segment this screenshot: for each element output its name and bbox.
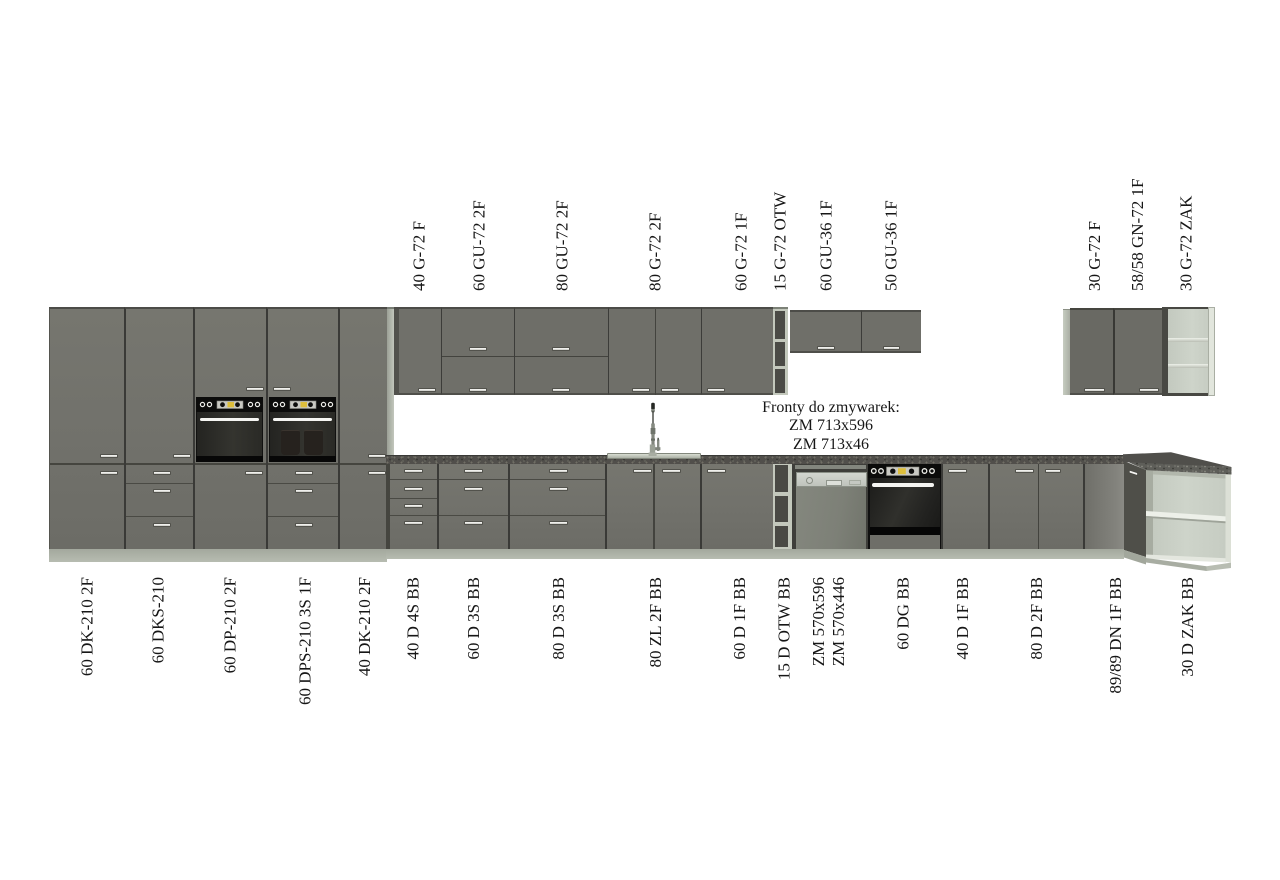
svg-text:ZM 570x446: ZM 570x446 xyxy=(829,577,848,666)
svg-text:60 DPS-210 3S 1F: 60 DPS-210 3S 1F xyxy=(296,577,315,705)
svg-text:60 GU-72 2F: 60 GU-72 2F xyxy=(470,200,489,291)
svg-text:30 D ZAK BB: 30 D ZAK BB xyxy=(1178,577,1197,677)
svg-text:30 G-72 ZAK: 30 G-72 ZAK xyxy=(1177,195,1196,291)
svg-text:50 GU-36 1F: 50 GU-36 1F xyxy=(882,200,901,291)
svg-text:60 G-72 1F: 60 G-72 1F xyxy=(732,213,751,291)
svg-text:40 D 4S BB: 40 D 4S BB xyxy=(404,577,423,660)
svg-text:80 D 2F BB: 80 D 2F BB xyxy=(1027,577,1046,660)
svg-text:40 G-72 F: 40 G-72 F xyxy=(410,221,429,291)
svg-text:60 GU-36 1F: 60 GU-36 1F xyxy=(817,200,836,291)
svg-text:80 G-72 2F: 80 G-72 2F xyxy=(646,213,665,291)
svg-text:80 ZL 2F BB: 80 ZL 2F BB xyxy=(646,577,665,668)
svg-text:ZM 570x596: ZM 570x596 xyxy=(809,577,828,666)
svg-text:40 D 1F BB: 40 D 1F BB xyxy=(953,577,972,660)
svg-text:60 DK-210 2F: 60 DK-210 2F xyxy=(78,577,97,676)
svg-text:15 D OTW BB: 15 D OTW BB xyxy=(774,577,793,680)
svg-text:60 DG BB: 60 DG BB xyxy=(893,577,912,650)
svg-text:60 DP-210 2F: 60 DP-210 2F xyxy=(221,577,240,673)
svg-text:60 D 1F BB: 60 D 1F BB xyxy=(730,577,749,660)
svg-text:30 G-72 F: 30 G-72 F xyxy=(1085,221,1104,291)
svg-text:15 G-72 OTW: 15 G-72 OTW xyxy=(771,191,790,291)
svg-text:60 DKS-210: 60 DKS-210 xyxy=(149,577,168,663)
svg-text:60 D 3S BB: 60 D 3S BB xyxy=(464,577,483,660)
svg-text:80 GU-72 2F: 80 GU-72 2F xyxy=(553,200,572,291)
svg-text:89/89 DN 1F BB: 89/89 DN 1F BB xyxy=(1106,577,1125,694)
svg-text:58/58 GN-72 1F: 58/58 GN-72 1F xyxy=(1128,179,1147,291)
svg-text:40 DK-210 2F: 40 DK-210 2F xyxy=(355,577,374,676)
svg-text:80 D 3S BB: 80 D 3S BB xyxy=(549,577,568,660)
